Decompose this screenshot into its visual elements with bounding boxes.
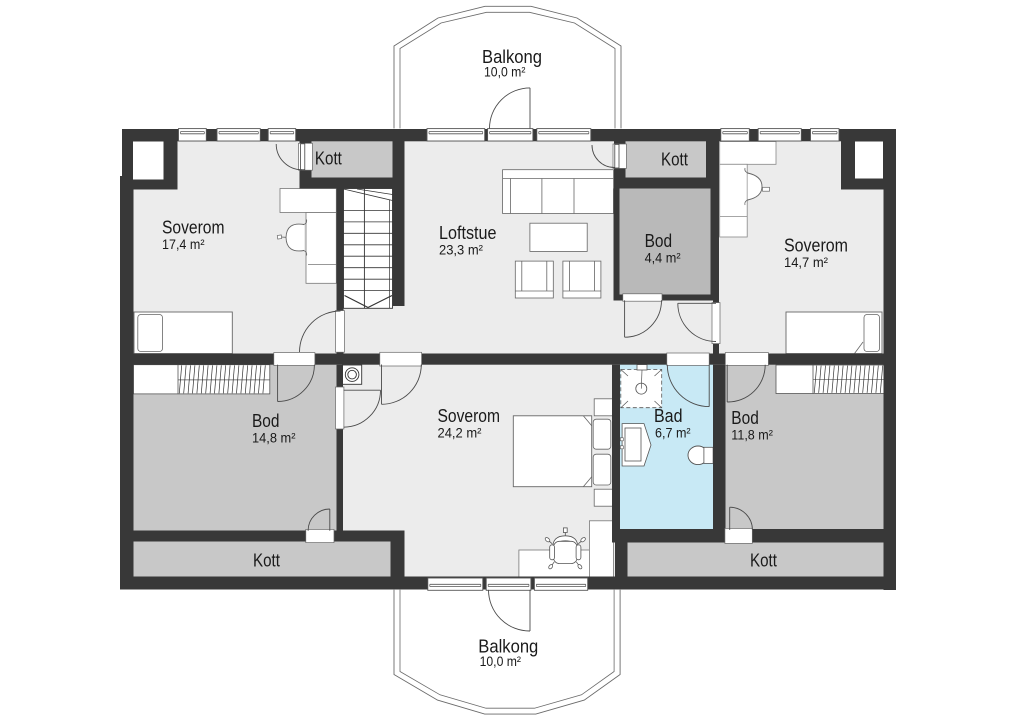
svg-text:4,4 m²: 4,4 m² bbox=[645, 250, 681, 266]
svg-text:14,8 m²: 14,8 m² bbox=[252, 430, 296, 446]
svg-text:Soverom: Soverom bbox=[784, 235, 848, 255]
svg-text:Kott: Kott bbox=[750, 551, 777, 571]
svg-text:Soverom: Soverom bbox=[438, 406, 501, 426]
svg-text:Soverom: Soverom bbox=[162, 217, 225, 237]
svg-text:Kott: Kott bbox=[253, 551, 280, 571]
svg-text:Bod: Bod bbox=[731, 408, 759, 428]
svg-text:14,7 m²: 14,7 m² bbox=[784, 254, 828, 270]
svg-text:24,2 m²: 24,2 m² bbox=[438, 425, 482, 441]
svg-text:Loftstue: Loftstue bbox=[439, 223, 497, 243]
svg-text:23,3 m²: 23,3 m² bbox=[439, 242, 483, 258]
svg-text:Bod: Bod bbox=[645, 231, 673, 251]
svg-text:11,8 m²: 11,8 m² bbox=[731, 427, 773, 443]
svg-text:Kott: Kott bbox=[315, 149, 342, 169]
svg-text:17,4 m²: 17,4 m² bbox=[162, 236, 205, 252]
svg-text:Bod: Bod bbox=[252, 411, 280, 431]
svg-text:6,7 m²: 6,7 m² bbox=[655, 425, 691, 441]
svg-text:Bad: Bad bbox=[654, 406, 683, 426]
svg-text:Kott: Kott bbox=[661, 150, 688, 170]
svg-text:10,0 m²: 10,0 m² bbox=[484, 63, 526, 79]
svg-text:10,0 m²: 10,0 m² bbox=[480, 653, 522, 669]
